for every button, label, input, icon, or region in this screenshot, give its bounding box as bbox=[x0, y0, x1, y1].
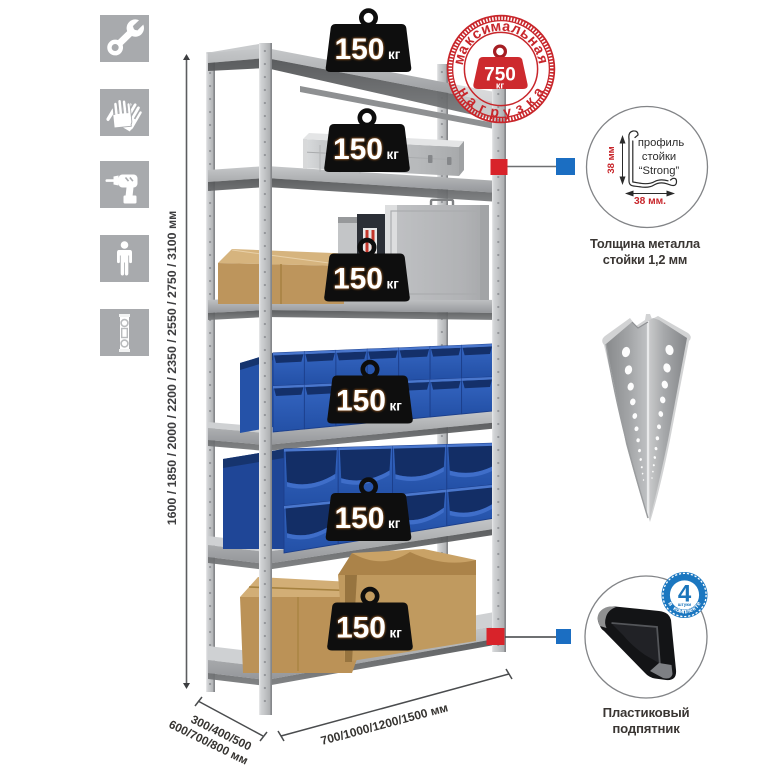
svg-text:Пластиковый: Пластиковый bbox=[603, 705, 690, 720]
svg-text:кг: кг bbox=[388, 516, 401, 531]
svg-text:150: 150 bbox=[336, 612, 386, 645]
svg-text:кг: кг bbox=[387, 147, 400, 162]
svg-text:м: м bbox=[490, 19, 503, 36]
svg-text:кг: кг bbox=[390, 399, 403, 414]
svg-text:150: 150 bbox=[334, 33, 384, 66]
svg-text:150: 150 bbox=[333, 263, 383, 296]
svg-text:кг: кг bbox=[390, 626, 403, 641]
svg-text:кг: кг bbox=[496, 81, 505, 91]
svg-text:штуки: штуки bbox=[678, 602, 692, 607]
svg-text:стойки 1,2 мм: стойки 1,2 мм bbox=[603, 252, 687, 267]
svg-text:150: 150 bbox=[334, 502, 384, 535]
svg-text:стойки: стойки bbox=[642, 151, 676, 163]
svg-text:профиль: профиль bbox=[638, 137, 684, 149]
svg-text:150: 150 bbox=[336, 385, 386, 418]
svg-text:подпятник: подпятник bbox=[612, 721, 680, 736]
svg-text:“Strong”: “Strong” bbox=[639, 165, 680, 177]
svg-text:Толщина металла: Толщина металла bbox=[590, 236, 701, 251]
svg-text:38 мм: 38 мм bbox=[606, 146, 617, 174]
svg-text:150: 150 bbox=[333, 133, 383, 166]
svg-text:38 мм.: 38 мм. bbox=[634, 196, 666, 207]
svg-text:кг: кг bbox=[387, 277, 400, 292]
svg-text:кг: кг bbox=[388, 47, 401, 62]
svg-text:1600 / 1850 / 2000 / 2200 / 23: 1600 / 1850 / 2000 / 2200 / 2350 / 2550 … bbox=[165, 211, 179, 526]
